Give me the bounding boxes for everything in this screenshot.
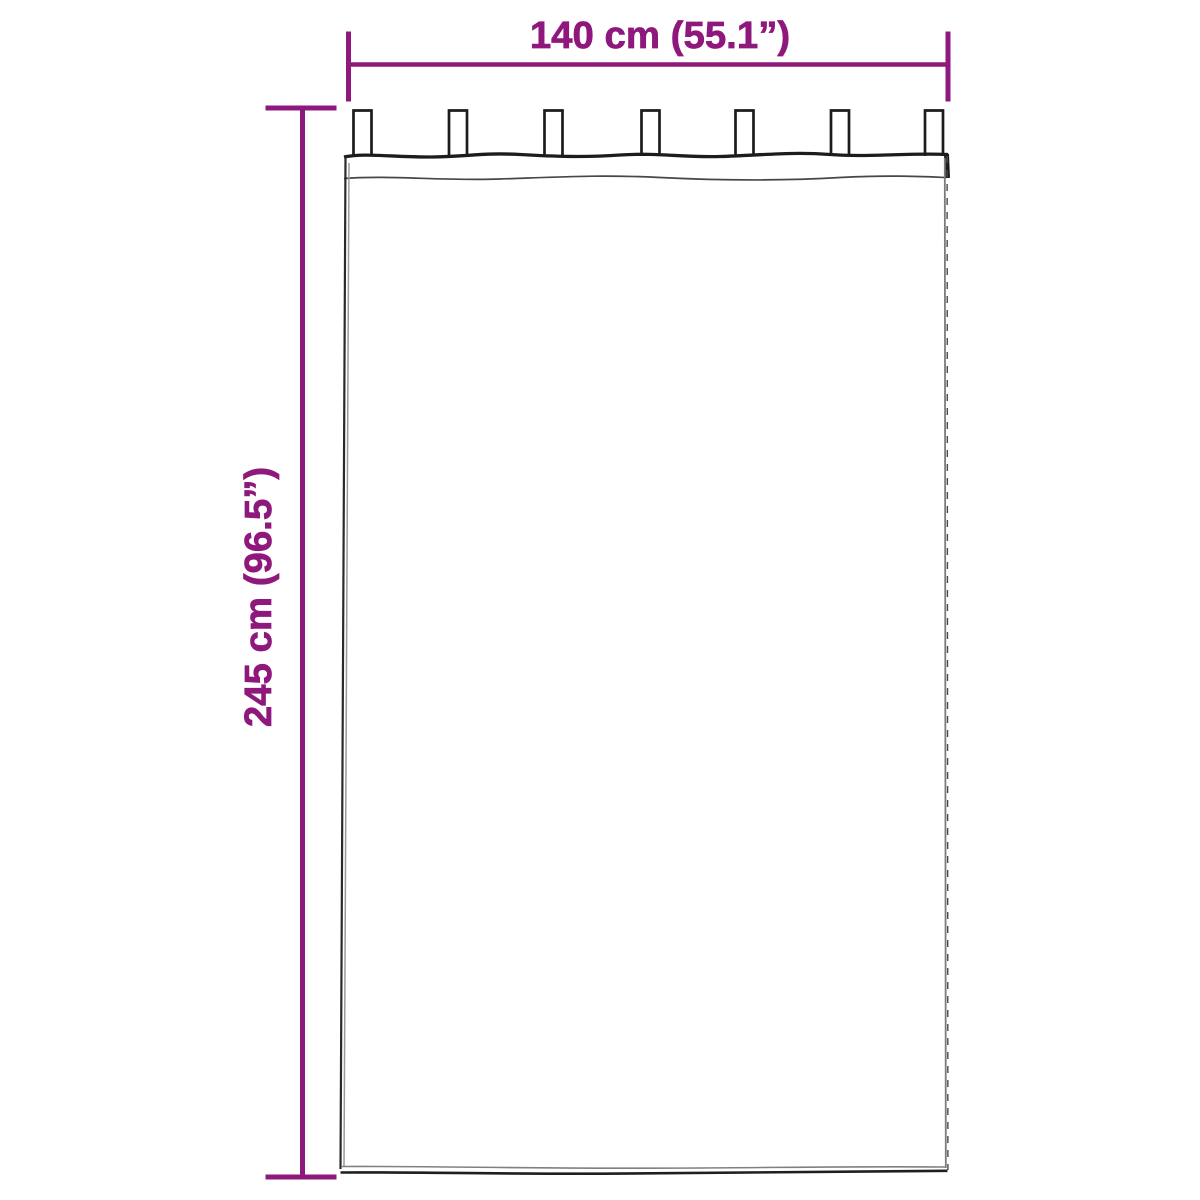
svg-text:245 cm (96.5”): 245 cm (96.5”) — [237, 467, 280, 727]
svg-text:140 cm (55.1”): 140 cm (55.1”) — [530, 14, 790, 57]
